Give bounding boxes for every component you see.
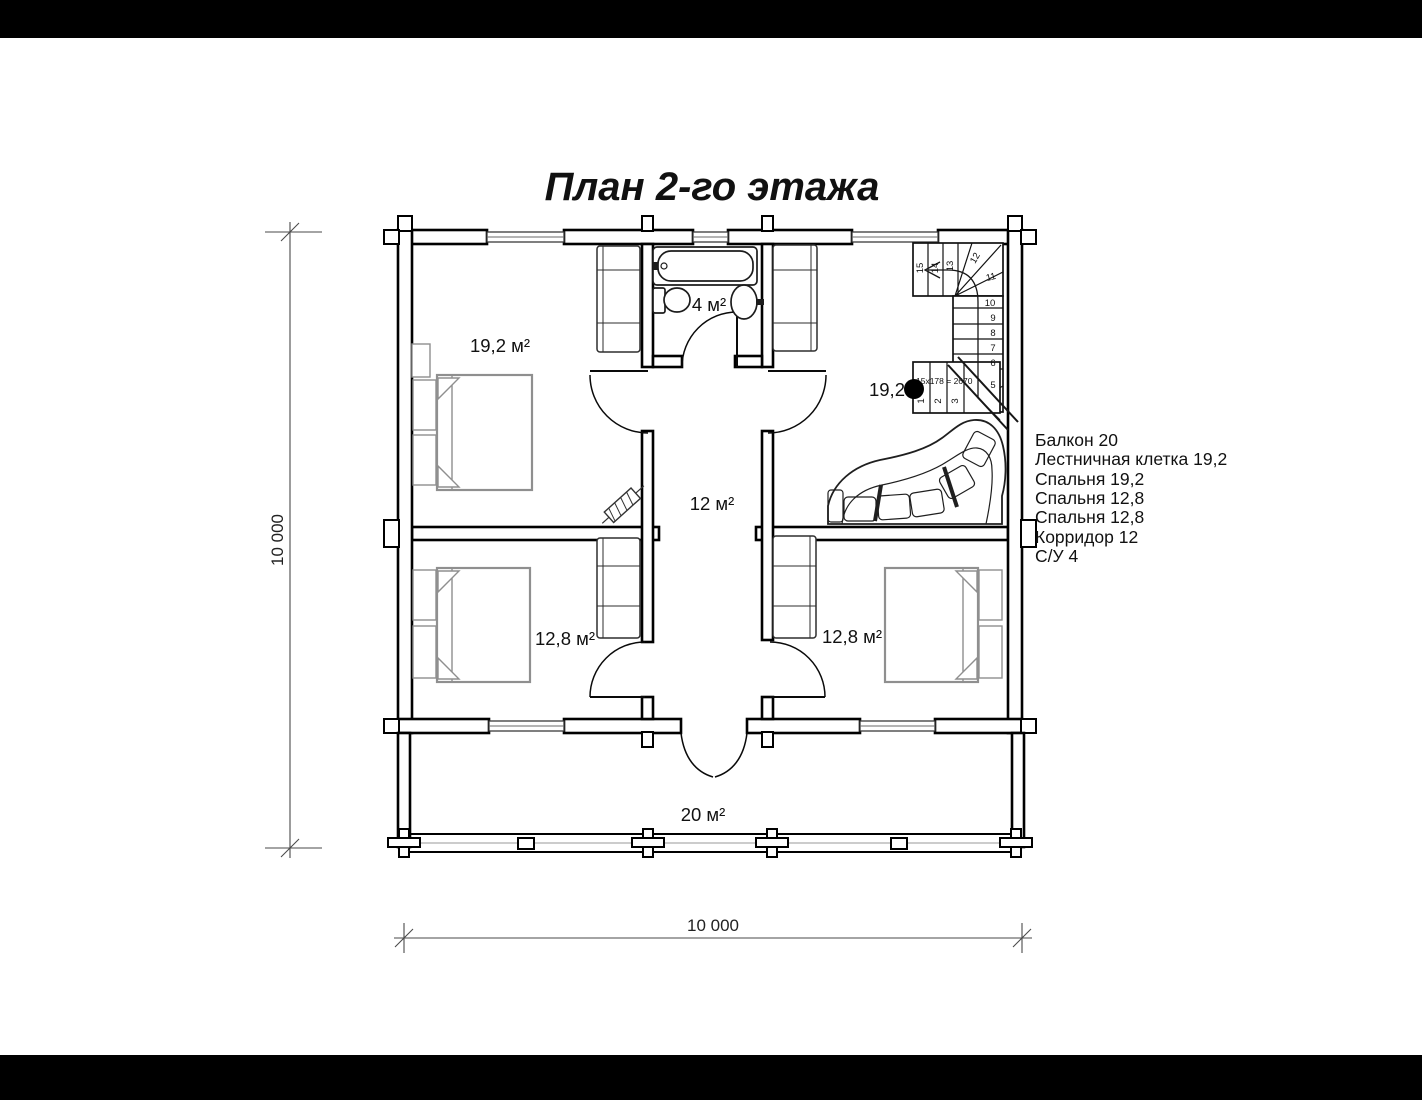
legend-item: С/У 4 [1035, 546, 1078, 566]
svg-text:14: 14 [930, 263, 941, 274]
toilet-icon [653, 288, 690, 313]
wardrobe [773, 536, 816, 638]
log-end-stub [1008, 216, 1022, 231]
sink-tap [756, 299, 764, 305]
balcony-door-leaf-arc [681, 733, 713, 777]
room-label-bathroom: 4 м² [692, 294, 726, 315]
dim-label-horizontal: 10 000 [687, 916, 739, 935]
letterbox-bottom [0, 1055, 1422, 1100]
wall-segment [398, 719, 489, 733]
sink-icon [731, 285, 764, 319]
svg-text:7: 7 [990, 343, 995, 354]
legend-item: Спальня 19,2 [1035, 469, 1144, 489]
log-end-stub [642, 732, 653, 747]
page-title: План 2-го этажа [545, 165, 880, 209]
log-end-stub [1021, 230, 1036, 244]
wall-segment [1008, 230, 1022, 733]
wall-segment [728, 230, 852, 244]
svg-text:6: 6 [990, 358, 995, 369]
wall-segment [642, 244, 653, 367]
nightstand [413, 570, 436, 620]
wardrobe [597, 246, 640, 352]
bed-top-left [412, 344, 532, 490]
wall-segment [762, 244, 773, 367]
nightstand [979, 570, 1002, 620]
balcony-door-leaf-arc [715, 733, 747, 777]
bed-bottom-left [413, 568, 530, 682]
legend: Балкон 20 Лестничная клетка 19,2 Спальня… [1035, 430, 1227, 566]
wall-segment [653, 356, 682, 367]
stair-formula: 15x178 = 2670 [916, 376, 973, 386]
log-end-stub [398, 216, 412, 231]
log-end-stub [384, 520, 399, 547]
nightstand [413, 626, 436, 678]
svg-text:2: 2 [933, 398, 944, 403]
legend-item: Спальня 12,8 [1035, 507, 1144, 527]
svg-text:15: 15 [915, 263, 926, 274]
wall-segment [642, 431, 653, 642]
wall-segment [564, 719, 681, 733]
wall-segment [735, 356, 762, 367]
log-end-stub [384, 719, 399, 733]
tub-faucet [653, 262, 658, 270]
room-label-bedroom-left: 12,8 м² [535, 628, 595, 649]
stairwell-marker-dot [904, 379, 924, 399]
door-swing [682, 312, 737, 367]
baluster [891, 838, 907, 849]
log-end-stub [384, 230, 399, 244]
nightstand [413, 380, 436, 430]
dimension-left: 10 000 [265, 222, 322, 858]
svg-text:1: 1 [916, 398, 927, 403]
bed-bottom-right [885, 568, 1002, 682]
room-label-balcony: 20 м² [681, 804, 726, 825]
balcony [388, 733, 1032, 857]
door-swing [770, 642, 825, 697]
room-label-bedroom-top: 19,2 м² [470, 335, 530, 356]
wall-segment [762, 431, 773, 640]
legend-item: Лестничная клетка 19,2 [1035, 449, 1227, 469]
log-end-stub [762, 732, 773, 747]
dimension-bottom: 10 000 [394, 916, 1032, 953]
legend-item: Спальня 12,8 [1035, 488, 1144, 508]
dresser [412, 344, 430, 377]
svg-text:9: 9 [990, 313, 995, 324]
wardrobe [773, 245, 817, 351]
legend-item: Балкон 20 [1035, 430, 1118, 450]
door-swing [768, 375, 826, 433]
room-label-stairwell: 19,2 [869, 379, 905, 400]
wardrobe [597, 538, 640, 638]
svg-text:5: 5 [990, 380, 995, 391]
letterbox-top [0, 0, 1422, 38]
log-end-stub [762, 216, 773, 231]
nightstand [979, 626, 1002, 678]
baluster [518, 838, 534, 849]
wall-segment [747, 719, 860, 733]
log-end-stub [642, 216, 653, 231]
log-end-stub [1021, 520, 1036, 547]
room-label-bedroom-right: 12,8 м² [822, 626, 882, 647]
door-swing [590, 642, 645, 697]
door-swing [590, 375, 648, 433]
wall-segment [564, 230, 693, 244]
wall-segment [642, 697, 653, 719]
nightstand [413, 435, 436, 485]
staircase: 15x178 = 2670 1 2 3 5 6 7 8 9 10 11 12 1… [913, 243, 1018, 430]
wall-segment [762, 697, 773, 719]
svg-text:10: 10 [985, 298, 996, 309]
floor-plan-canvas: План 2-го этажа [0, 0, 1422, 1100]
room-labels: 19,2 м² 4 м² 12 м² 12,8 м² 12,8 м² 20 м²… [470, 294, 924, 825]
bathtub-icon [653, 247, 757, 285]
room-label-corridor: 12 м² [690, 493, 735, 514]
wall-segment [935, 719, 1022, 733]
dim-label-vertical: 10 000 [268, 514, 287, 566]
wall-segment [398, 230, 412, 733]
legend-item: Корридор 12 [1035, 527, 1138, 547]
log-end-stub [1021, 719, 1036, 733]
floor-plan-page: План 2-го этажа [0, 0, 1422, 1100]
svg-text:3: 3 [950, 398, 961, 403]
svg-text:13: 13 [945, 261, 956, 272]
svg-text:8: 8 [990, 328, 995, 339]
sofa-icon [828, 420, 1006, 524]
